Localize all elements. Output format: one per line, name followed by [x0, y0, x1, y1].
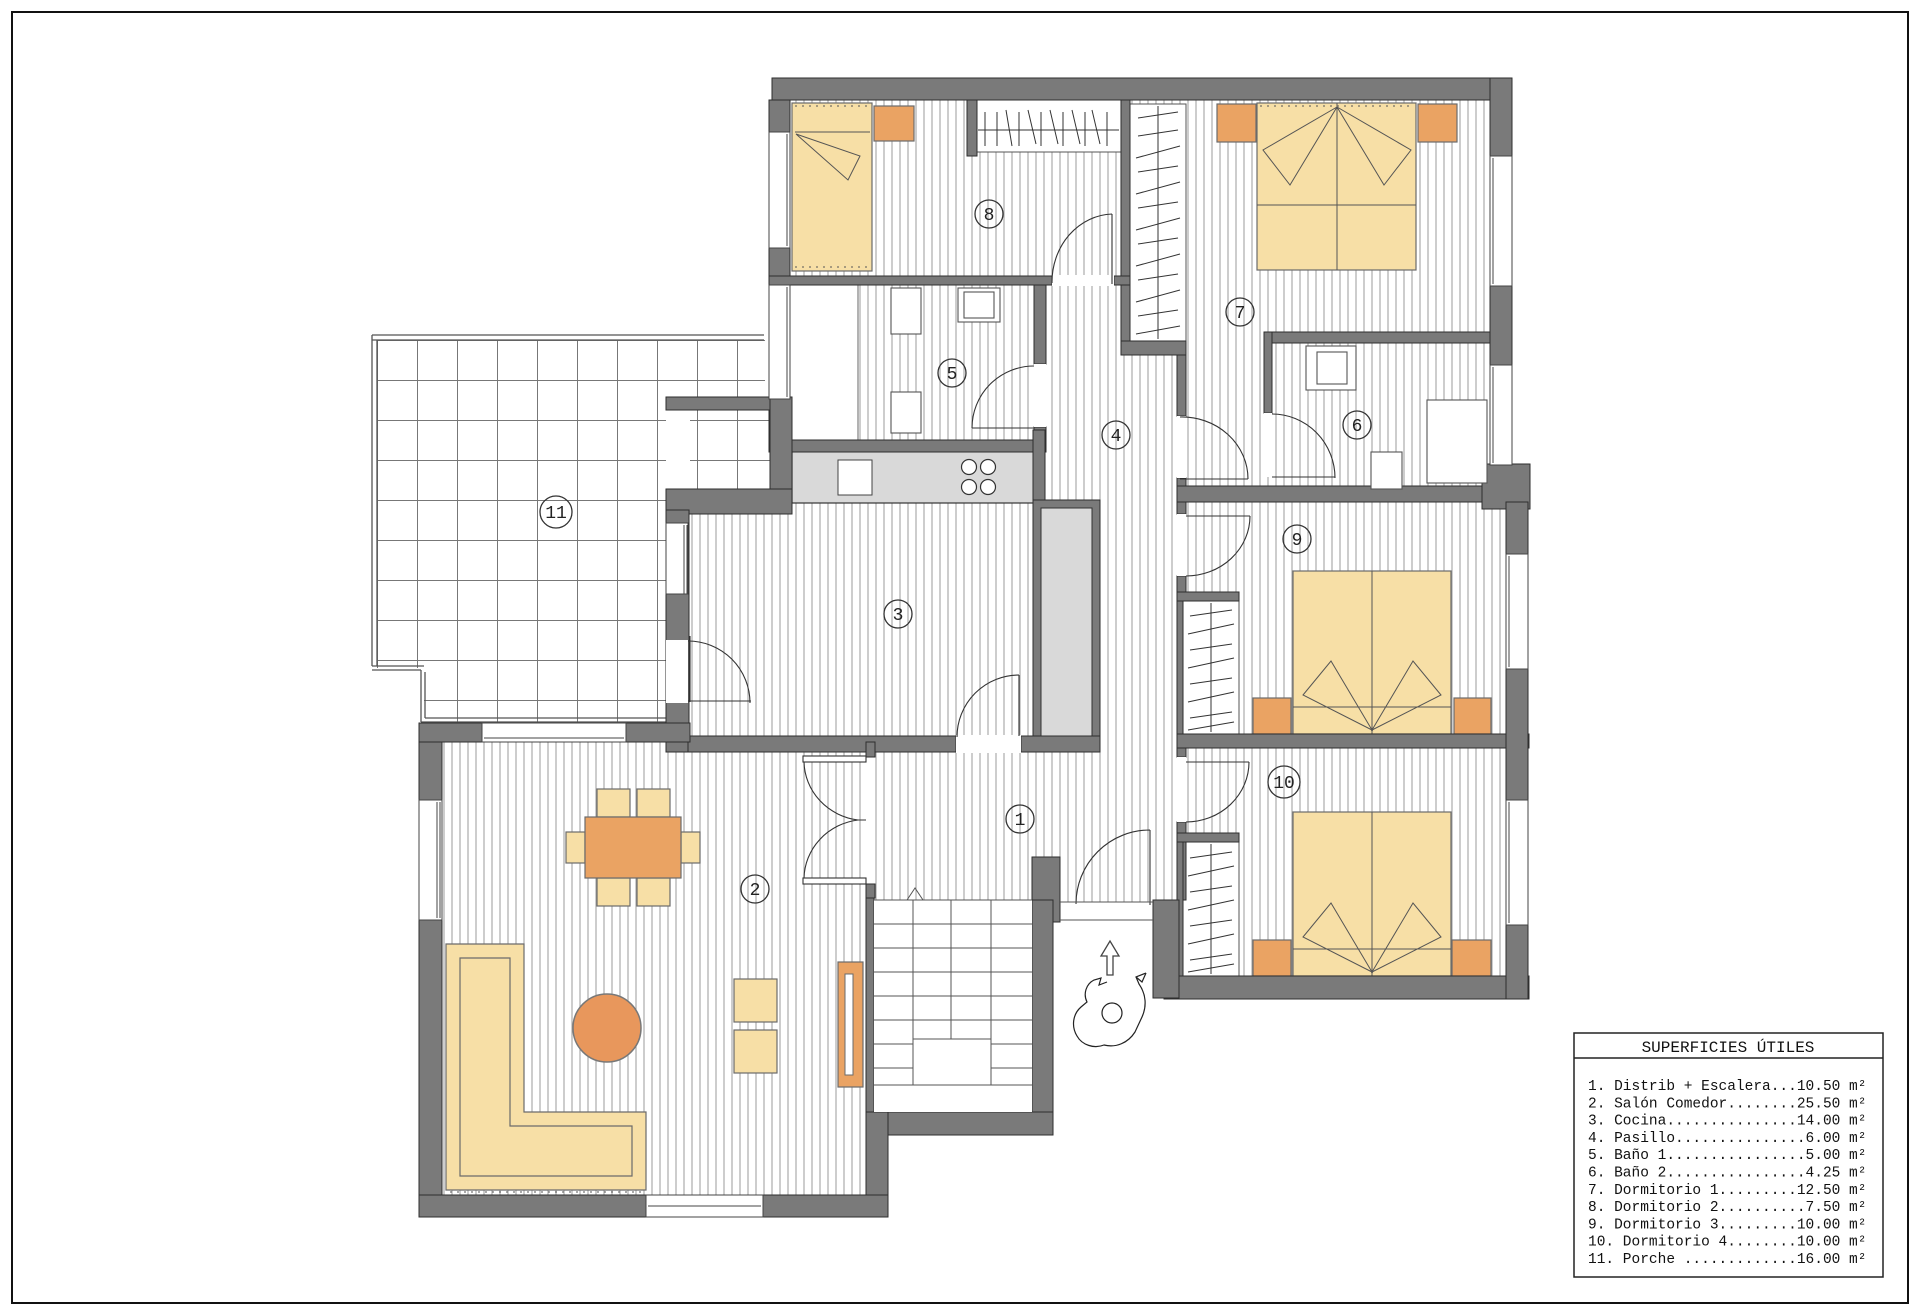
svg-text:5: 5: [947, 365, 958, 385]
svg-text:7: 7: [1235, 304, 1246, 324]
svg-text:2: 2: [750, 881, 761, 901]
svg-text:2. Salón Comedor........25.50: 2. Salón Comedor........25.50 m²: [1588, 1096, 1866, 1112]
svg-text:1: 1: [1015, 811, 1026, 831]
svg-text:9: 9: [1292, 531, 1303, 551]
svg-text:6. Baño 2................4.25: 6. Baño 2................4.25 m²: [1588, 1166, 1866, 1182]
svg-text:8. Dormitorio 2..........7.50: 8. Dormitorio 2..........7.50 m²: [1588, 1200, 1866, 1216]
svg-text:7. Dormitorio 1.........12.50: 7. Dormitorio 1.........12.50 m²: [1588, 1183, 1866, 1199]
svg-text:1. Distrib + Escalera...10.50: 1. Distrib + Escalera...10.50 m²: [1588, 1079, 1866, 1095]
svg-text:5. Baño 1................5.00: 5. Baño 1................5.00 m²: [1588, 1148, 1866, 1164]
svg-text:4. Pasillo...............6.00: 4. Pasillo...............6.00 m²: [1588, 1131, 1866, 1147]
svg-text:9. Dormitorio 3.........10.00: 9. Dormitorio 3.........10.00 m²: [1588, 1217, 1866, 1233]
svg-text:3: 3: [893, 606, 904, 626]
svg-text:10. Dormitorio 4........10.00: 10. Dormitorio 4........10.00 m²: [1588, 1235, 1866, 1251]
svg-text:6: 6: [1352, 417, 1363, 437]
svg-text:SUPERFICIES ÚTILES: SUPERFICIES ÚTILES: [1642, 1038, 1815, 1057]
svg-text:4: 4: [1111, 427, 1122, 447]
svg-text:10: 10: [1273, 774, 1295, 794]
svg-text:8: 8: [984, 206, 995, 226]
svg-text:11. Porche .............16.00: 11. Porche .............16.00 m²: [1588, 1252, 1866, 1268]
svg-text:11: 11: [545, 504, 567, 524]
svg-text:3. Cocina...............14.00: 3. Cocina...............14.00 m²: [1588, 1114, 1866, 1130]
